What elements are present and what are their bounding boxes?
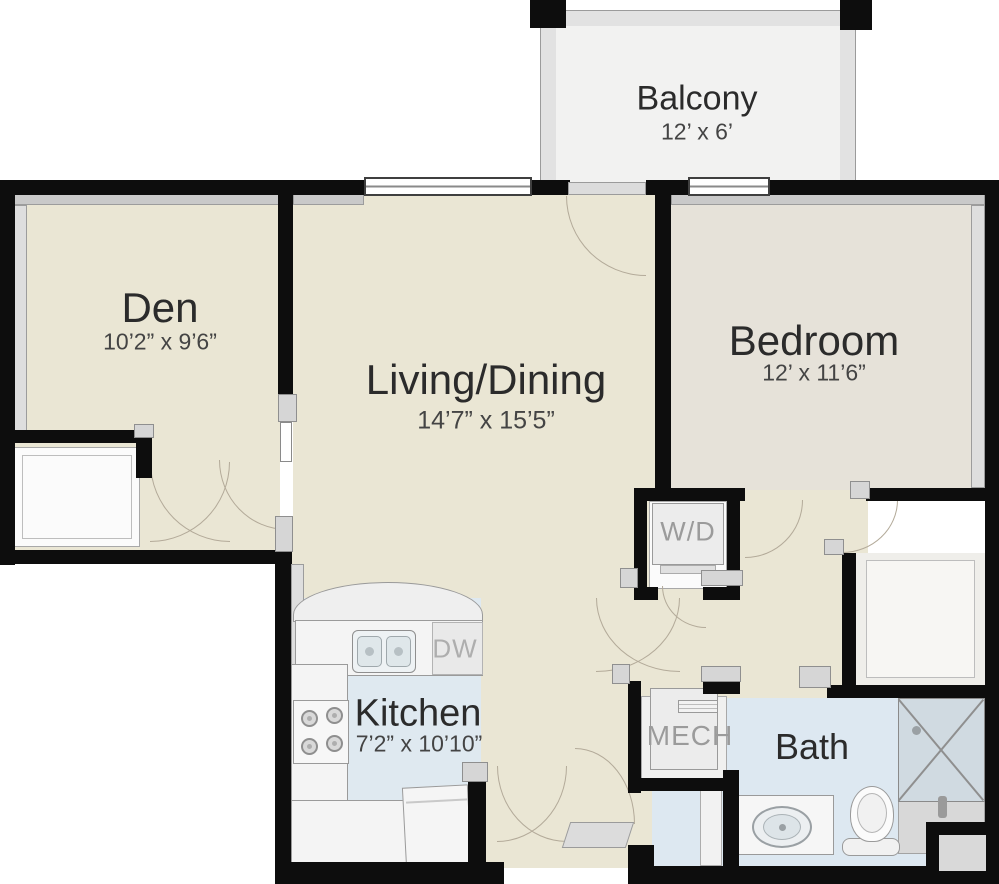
sink-drain-left — [365, 647, 374, 656]
toilet-seat — [857, 793, 887, 833]
shower-door-knob — [912, 726, 921, 735]
wall-mech-left — [628, 681, 641, 793]
mechanical-vent — [678, 700, 718, 713]
wall-wd-bottom-left — [634, 587, 658, 600]
dishwasher-label: DW — [432, 634, 477, 665]
living-dims: 14’7” x 15’5” — [417, 407, 555, 436]
wall-top-2 — [532, 180, 570, 195]
wall-cap — [620, 568, 638, 588]
vanity-faucet — [779, 824, 786, 831]
wall-cap — [799, 666, 831, 688]
wall-cap — [612, 664, 630, 684]
stove-burner — [301, 738, 318, 755]
bedroom-closet-inset — [866, 560, 975, 678]
wall-cap — [462, 762, 488, 782]
kitchen-bottom-counter — [291, 800, 409, 864]
wall-cap — [701, 666, 741, 682]
wall-closet-left — [842, 553, 856, 685]
balcony-post-left — [530, 0, 566, 28]
wall-den-living — [278, 180, 293, 422]
wall-left — [0, 180, 15, 565]
den-living-door-leaf — [280, 422, 292, 462]
kitchen-label: Kitchen — [355, 693, 482, 736]
balcony-door-sill — [568, 182, 646, 195]
floor-plan: Balcony 12’ x 6’ Den 10’2” x 9’6” Living… — [0, 0, 999, 884]
wall-cap — [824, 539, 844, 555]
balcony-dims: 12’ x 6’ — [661, 119, 733, 146]
living-label: Living/Dining — [366, 356, 606, 404]
wall-top-4 — [768, 180, 999, 195]
bath-label: Bath — [775, 726, 849, 768]
wall-cap — [275, 516, 293, 552]
wall-kitchen-bottom — [275, 862, 504, 884]
closet-door-arc — [842, 500, 898, 553]
wall-den-closet-top — [0, 430, 138, 443]
wall-right — [985, 180, 999, 880]
wall-mech-bottom — [628, 778, 728, 791]
wall-wd-top — [634, 488, 740, 501]
wall-cap — [134, 424, 154, 438]
stove-burner — [326, 707, 343, 724]
wall-wd-bottom-right — [703, 587, 740, 600]
den-closet-shelf — [22, 455, 132, 539]
wall-den-bottom — [0, 550, 292, 564]
bedroom-right-bevel — [971, 205, 985, 488]
wall-entry-stub — [628, 845, 654, 884]
balcony-label: Balcony — [637, 80, 758, 119]
wall-kitchen-left — [275, 550, 291, 884]
entry-door-sill — [562, 822, 634, 848]
shower-corner-box — [926, 822, 999, 884]
refrigerator — [402, 784, 472, 869]
mechanical-label: MECH — [647, 720, 733, 752]
stove-burner — [301, 710, 318, 727]
living-window — [364, 177, 532, 196]
kitchen-dims: 7’2” x 10’10” — [356, 731, 483, 758]
vestibule-door-leaf — [700, 788, 722, 866]
wall-mech-top-right — [703, 681, 740, 694]
wall-top-1 — [0, 180, 364, 195]
wall-cap — [278, 394, 297, 422]
wall-cap — [701, 570, 743, 586]
wall-living-bedroom — [655, 180, 671, 490]
shower-head — [938, 796, 947, 818]
balcony-post-right — [840, 0, 872, 30]
wall-bedroom-south-right — [866, 488, 999, 501]
bedroom-dims: 12’ x 11’6” — [762, 360, 866, 387]
sink-drain-right — [394, 647, 403, 656]
washer-dryer-label: W/D — [660, 517, 715, 548]
wall-bath-north — [827, 685, 999, 698]
wall-cap — [850, 481, 870, 499]
stove-burner — [326, 735, 343, 752]
bedroom-label: Bedroom — [729, 317, 899, 365]
den-dims: 10’2” x 9’6” — [103, 329, 217, 356]
den-left-bevel — [14, 205, 27, 435]
bedroom-window — [688, 177, 770, 196]
den-label: Den — [121, 284, 198, 332]
